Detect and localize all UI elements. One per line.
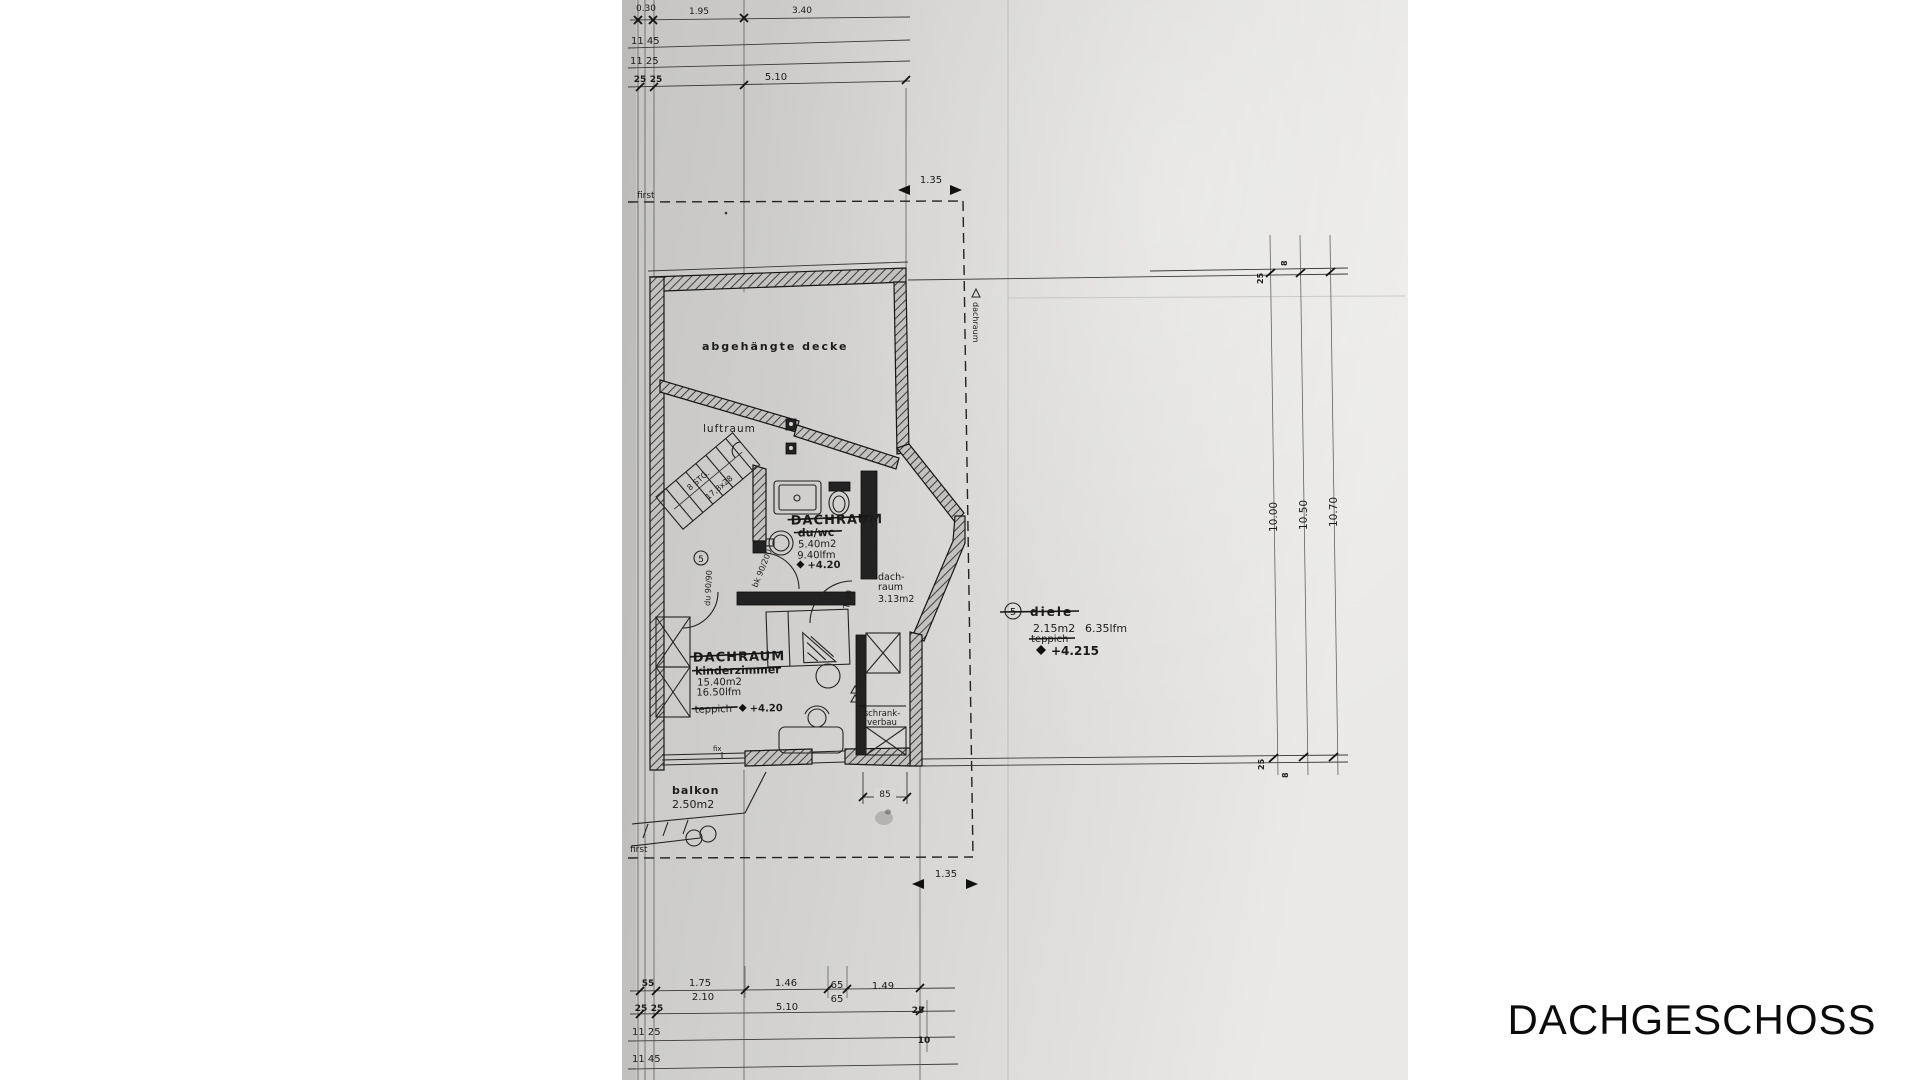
ridge-label-bottom: first — [630, 845, 648, 855]
wall-left — [650, 277, 664, 770]
tick-8-top: 8 — [1280, 260, 1289, 266]
du-annotation: du 90/90 — [703, 570, 714, 606]
tick-25-bottom: 25 — [1257, 758, 1266, 770]
dim-25-a-top: 25 — [634, 75, 647, 85]
dim-25-c-bottom: 25 — [912, 1006, 925, 1016]
wall-right-upper — [894, 282, 909, 454]
bath-level: +4.20 — [807, 560, 840, 572]
dim-55: 55 — [642, 979, 655, 989]
tick-8-bottom: 8 — [1281, 772, 1290, 778]
scanned-plan-sheet — [622, 0, 1408, 1080]
wc-cistern — [829, 482, 850, 491]
dim-11-25-top: 11 25 — [630, 56, 659, 67]
dim-10-50: 10.50 — [1298, 500, 1310, 530]
wall-right-lower — [910, 632, 922, 766]
dim-10-00: 10.00 — [1268, 502, 1280, 532]
offset-1-35-top: 1.35 — [920, 175, 942, 186]
closet-label-2: verbau — [867, 718, 897, 728]
dachraum-edge-label: dachraum — [971, 302, 980, 343]
hall-perimeter: 6.35lfm — [1085, 622, 1127, 635]
wall-bath-left — [753, 465, 766, 541]
page-title: DACHGESCHOSS — [1507, 996, 1876, 1043]
dim-85-value: 85 — [879, 790, 890, 800]
wall-bath-kinderzimmer — [737, 592, 855, 605]
balcony-name: balkon — [672, 784, 719, 797]
dim-1-75: 1.75 — [689, 978, 711, 989]
wall-bottom-a — [745, 749, 812, 766]
dim-5-10-top: 5.10 — [765, 72, 787, 83]
dim-11-45-bottom: 11 45 — [632, 1054, 661, 1065]
dim-1-46: 1.46 — [775, 978, 797, 989]
dim-5-10-bottom: 5.10 — [776, 1002, 798, 1013]
fix-annotation: fix — [713, 745, 722, 753]
void-label: luftraum — [703, 423, 756, 435]
offset-1-35-bottom: 1.35 — [935, 869, 957, 880]
dim-1-95: 1.95 — [689, 7, 709, 17]
dim-2-10: 2.10 — [692, 992, 714, 1003]
dim-11-45-top: 11 45 — [631, 36, 660, 47]
dim-10-70: 10.70 — [1328, 497, 1340, 527]
bath-area: 5.40m2 — [798, 539, 837, 551]
dim-11-25-bottom: 11 25 — [632, 1027, 661, 1038]
room-number: 5 — [698, 555, 704, 565]
dim-10: 10 — [918, 1036, 931, 1046]
balcony-area: 2.50m2 — [672, 798, 714, 811]
attic-small-label-2: raum — [878, 582, 903, 593]
attic-small-area: 3.13m2 — [878, 594, 914, 605]
dim-0-30: 0.30 — [636, 4, 656, 14]
child-level: +4.20 — [750, 703, 783, 715]
paper-left-shadow — [622, 0, 636, 1080]
wall-closet-side — [856, 635, 866, 755]
dim-65-a: 65 — [831, 980, 844, 991]
dim-25-a-bottom: 25 — [635, 1004, 648, 1014]
floorplan-page: 0.30 1.95 3.40 11 45 11 25 25 25 5.10 fi… — [0, 0, 1920, 1080]
ceiling-note-label: abgehängte decke — [702, 340, 848, 353]
dim-3-40: 3.40 — [792, 6, 812, 16]
dim-65-b: 65 — [831, 994, 844, 1005]
child-floor: teppich — [695, 704, 733, 716]
dim-25-b-bottom: 25 — [651, 1004, 664, 1014]
dim-25-b-top: 25 — [650, 75, 663, 85]
hall-level: +4.215 — [1051, 644, 1099, 658]
ridge-label-top: first — [637, 191, 655, 201]
child-perimeter: 16.50lfm — [696, 687, 741, 699]
tick-25-top: 25 — [1256, 272, 1265, 284]
dim-1-49: 1.49 — [872, 981, 894, 992]
